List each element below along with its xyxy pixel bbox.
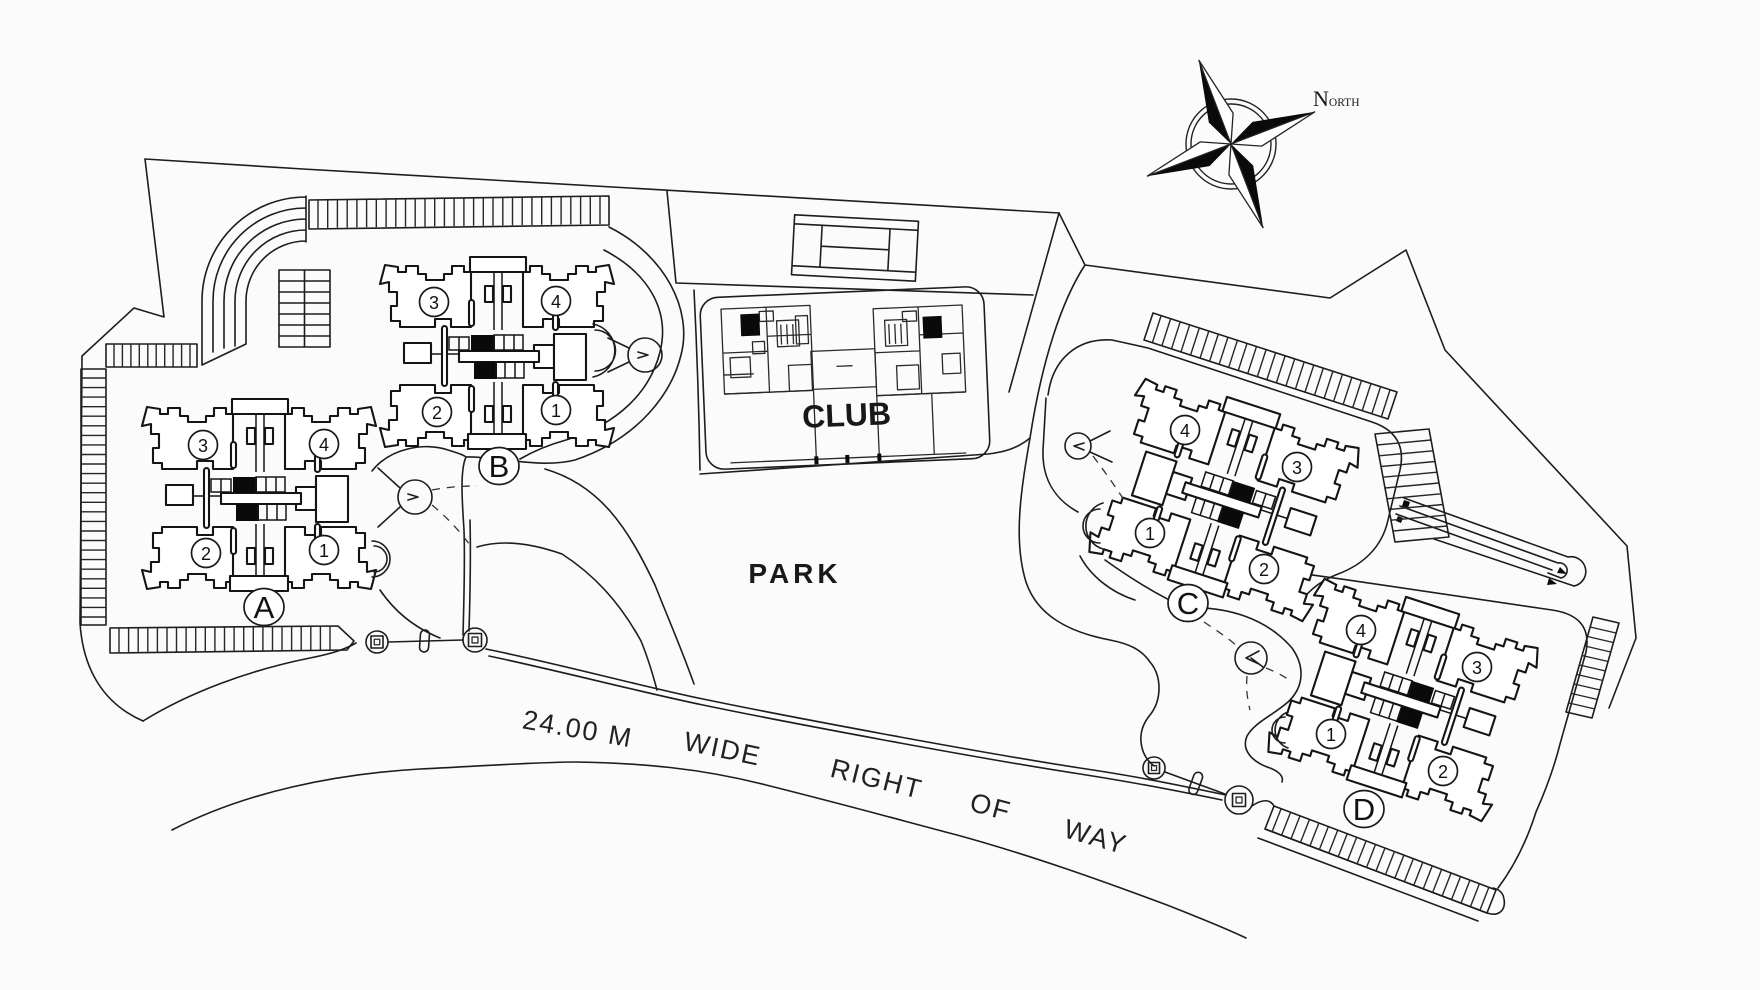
svg-text:2: 2 (201, 544, 211, 564)
svg-text:4: 4 (1180, 421, 1190, 441)
svg-text:2: 2 (432, 403, 442, 423)
svg-text:B: B (489, 449, 510, 484)
svg-text:4: 4 (1356, 621, 1366, 641)
svg-text:4: 4 (551, 292, 561, 312)
svg-text:PARK: PARK (748, 558, 841, 589)
svg-text:2: 2 (1438, 762, 1448, 782)
svg-text:1: 1 (319, 541, 329, 561)
svg-text:1: 1 (551, 401, 561, 421)
svg-text:3: 3 (198, 436, 208, 456)
svg-text:1: 1 (1326, 725, 1336, 745)
svg-text:D: D (1353, 792, 1375, 827)
svg-text:1: 1 (1145, 524, 1155, 544)
svg-text:3: 3 (1472, 658, 1482, 678)
svg-text:2: 2 (1259, 560, 1269, 580)
svg-text:4: 4 (319, 435, 329, 455)
svg-text:CLUB: CLUB (801, 395, 891, 435)
svg-text:A: A (254, 590, 275, 625)
svg-text:3: 3 (1292, 458, 1302, 478)
svg-text:C: C (1177, 586, 1199, 621)
svg-text:3: 3 (429, 293, 439, 313)
